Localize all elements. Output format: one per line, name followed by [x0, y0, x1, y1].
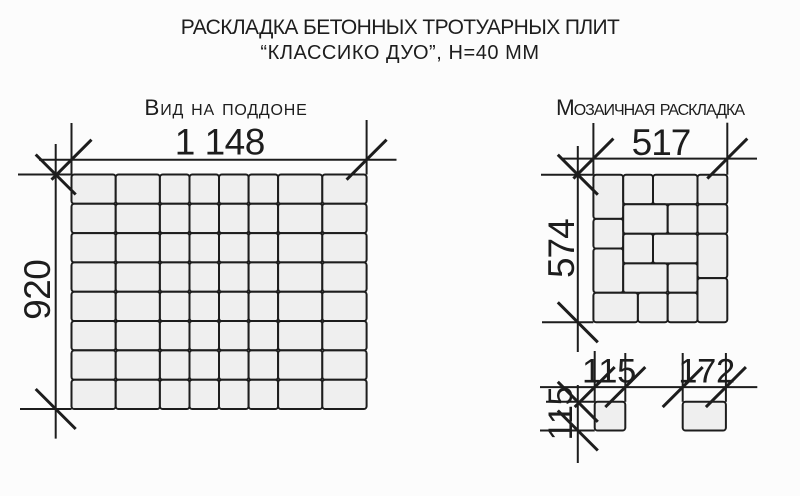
svg-text:920: 920	[17, 260, 58, 320]
svg-text:115: 115	[582, 352, 636, 390]
svg-text:1 148: 1 148	[175, 122, 265, 163]
svg-text:574: 574	[541, 219, 582, 278]
svg-text:172: 172	[678, 353, 735, 391]
svg-text:517: 517	[632, 122, 691, 163]
svg-text:115: 115	[542, 386, 580, 440]
